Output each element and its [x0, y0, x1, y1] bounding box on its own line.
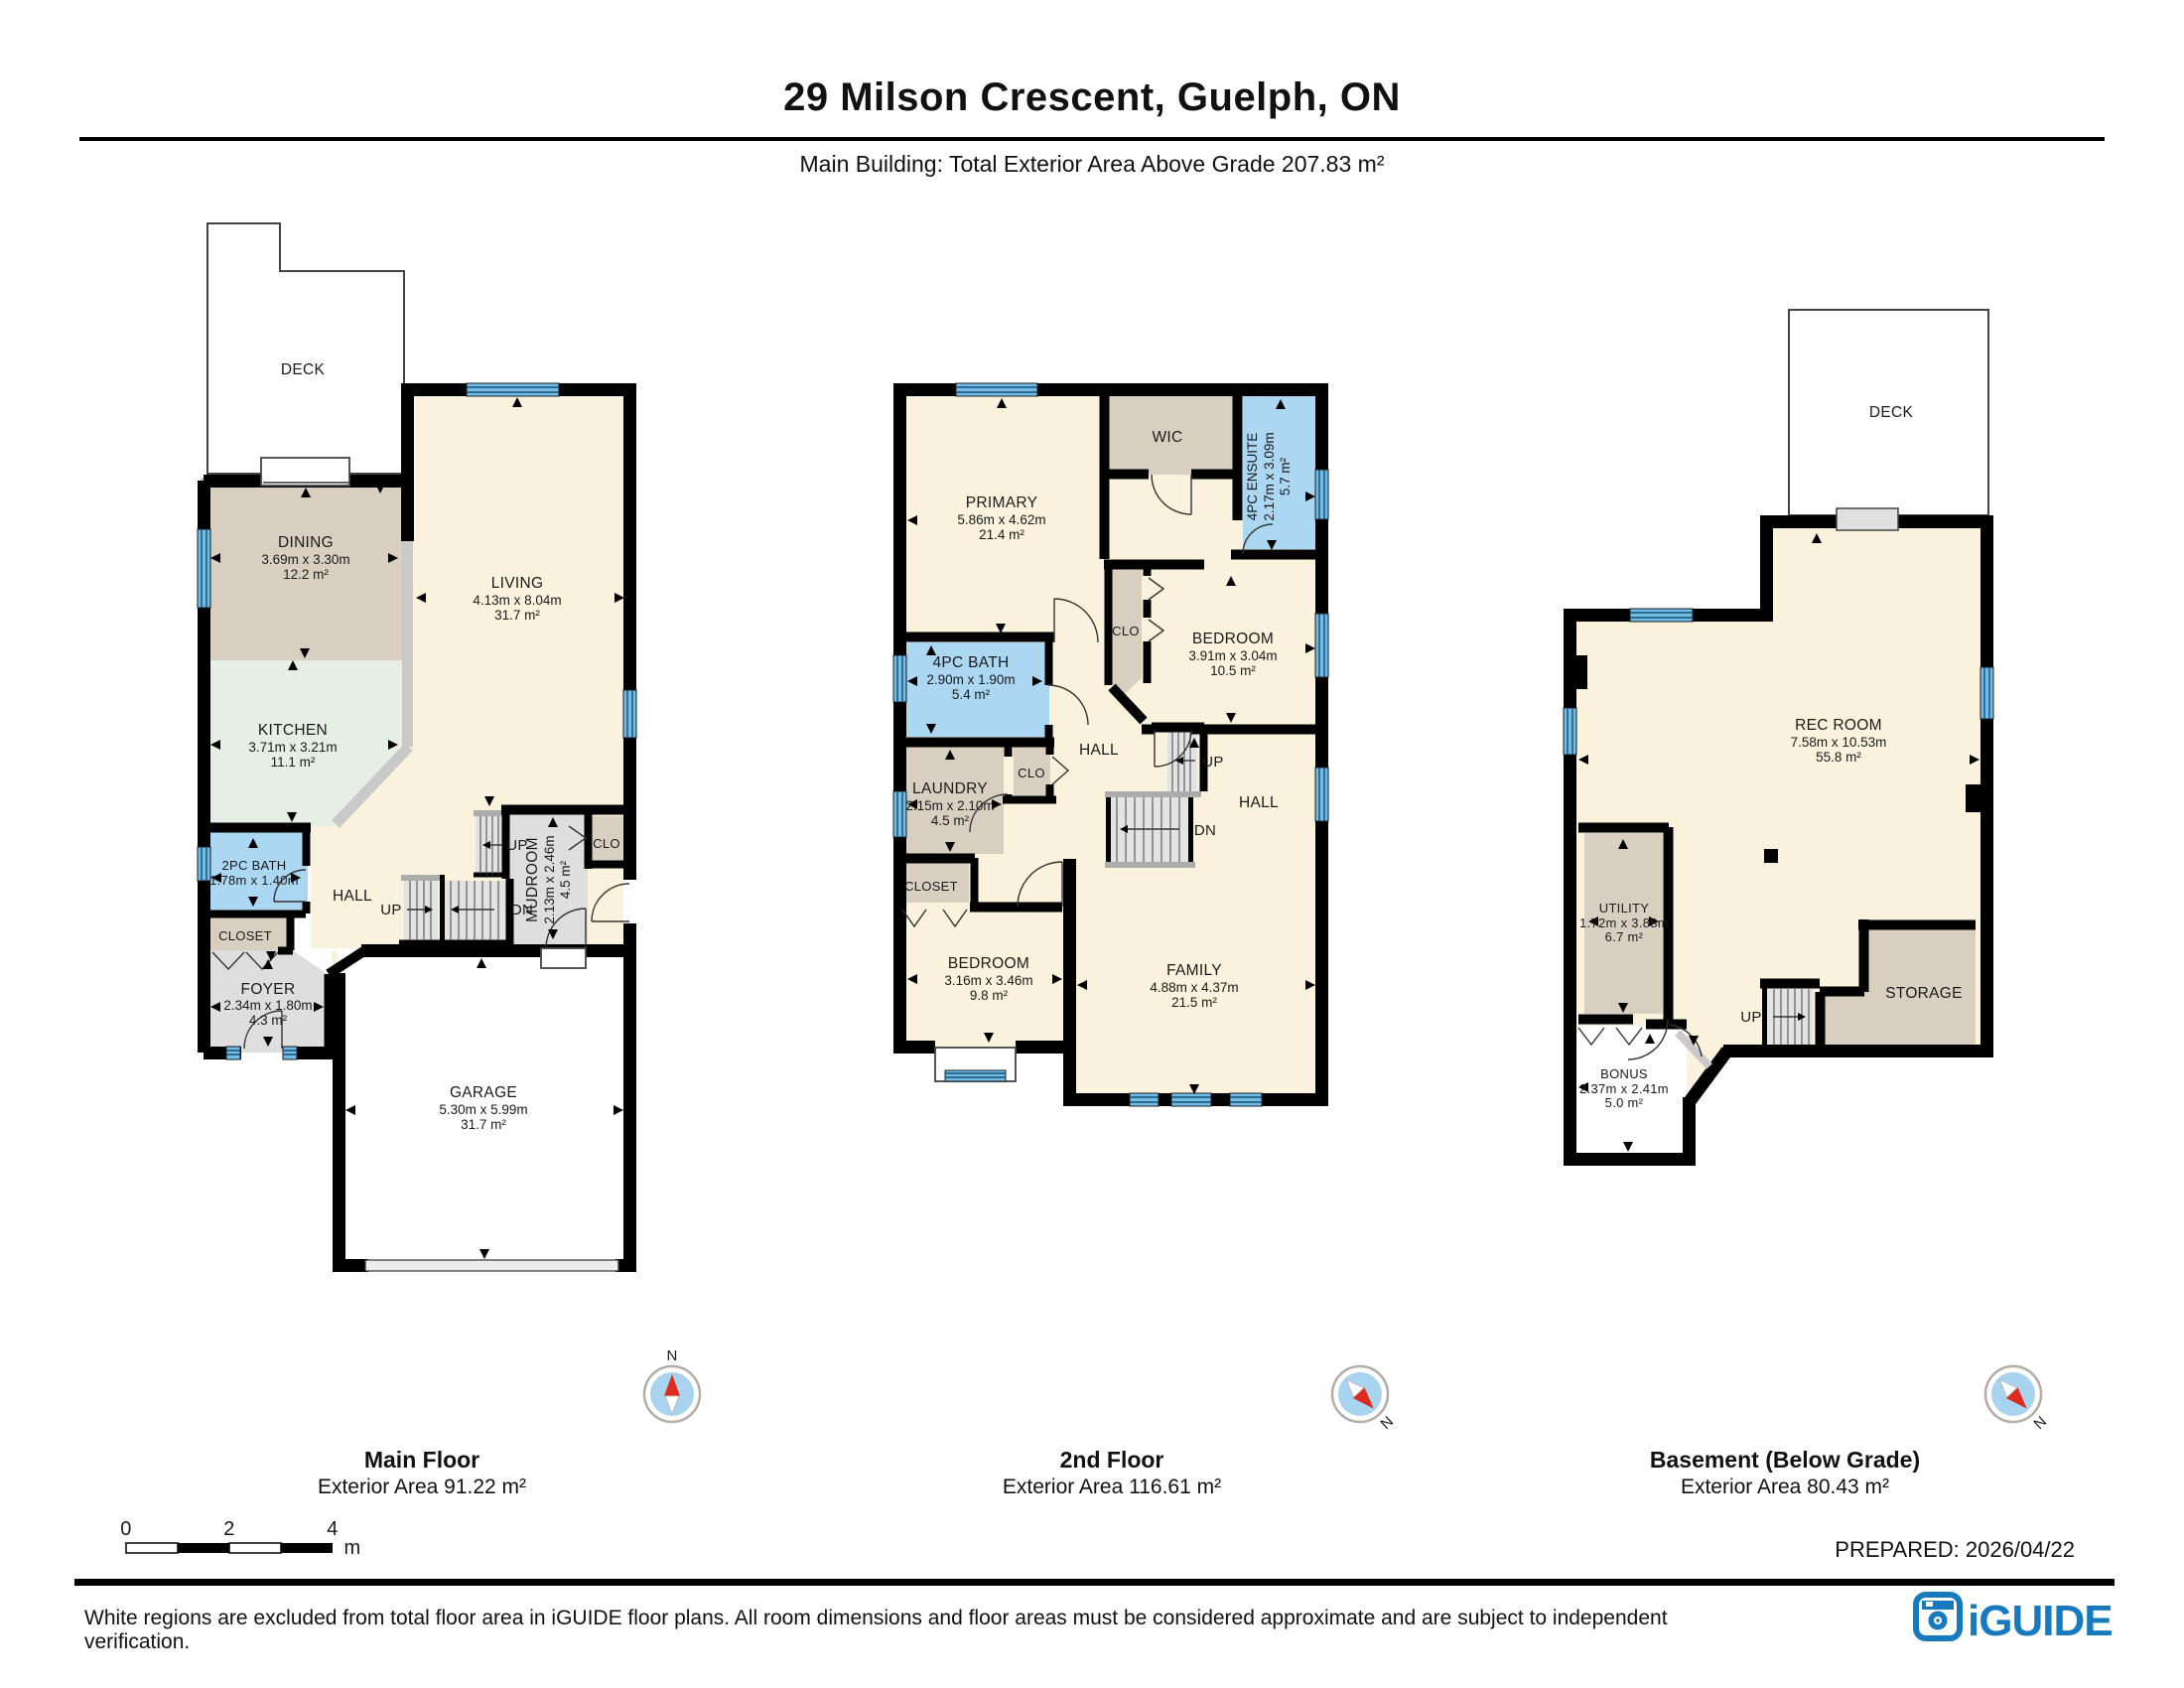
svg-text:3.16m x 3.46m: 3.16m x 3.46m — [944, 973, 1032, 988]
svg-text:7.58m x 10.53m: 7.58m x 10.53m — [1791, 735, 1887, 750]
scale-bar: 0 2 4 m — [109, 1517, 407, 1567]
label-clo: CLO — [593, 836, 620, 851]
svg-text:2.15m x 2.10m: 2.15m x 2.10m — [905, 798, 994, 813]
compass-2nd-floor: N — [1315, 1342, 1405, 1442]
label-bedroom3: BEDROOM — [948, 955, 1029, 972]
svg-text:12.2 m²: 12.2 m² — [283, 567, 329, 582]
label-hall2: HALL — [1239, 794, 1279, 811]
floorplan-2nd-floor: PRIMARY 5.86m x 4.62m 21.4 m² WIC 4PC EN… — [869, 367, 1350, 1132]
label-rec-room: REC ROOM — [1795, 717, 1882, 734]
iguide-logo: iGUIDE — [1912, 1589, 2120, 1644]
label-closet: CLOSET — [218, 928, 272, 943]
svg-text:2.37m x 2.41m: 2.37m x 2.41m — [1579, 1081, 1669, 1096]
svg-text:2: 2 — [223, 1518, 234, 1540]
svg-text:5.0 m²: 5.0 m² — [1605, 1095, 1644, 1110]
svg-text:2.13m x 2.46m: 2.13m x 2.46m — [542, 835, 557, 923]
deck-outline — [207, 223, 404, 474]
label-dn: DN — [511, 902, 533, 918]
svg-text:5.86m x 4.62m: 5.86m x 4.62m — [957, 512, 1045, 527]
label-utility: UTILITY — [1599, 901, 1650, 915]
svg-text:6.7 m²: 6.7 m² — [1605, 929, 1644, 944]
label-foyer: FOYER — [241, 981, 296, 998]
floorplan-page: 29 Milson Crescent, Guelph, ON Main Buil… — [0, 0, 2184, 1688]
compass-basement: N — [1969, 1342, 2058, 1442]
label-deck: DECK — [281, 361, 326, 378]
svg-text:4.5 m²: 4.5 m² — [931, 813, 970, 828]
label-closet: CLOSET — [904, 879, 958, 894]
label-bonus: BONUS — [1600, 1066, 1648, 1081]
label-up: UP — [1740, 1009, 1761, 1026]
caption-main-floor: Main Floor Exterior Area 91.22 m² — [213, 1446, 630, 1500]
label-dn: DN — [1194, 822, 1216, 839]
label-wic: WIC — [1152, 429, 1182, 446]
svg-text:4.13m x 8.04m: 4.13m x 8.04m — [473, 593, 561, 608]
label-kitchen: KITCHEN — [258, 722, 328, 739]
svg-text:31.7 m²: 31.7 m² — [461, 1117, 506, 1132]
title-divider — [79, 137, 2105, 141]
label-2pc-bath: 2PC BATH — [221, 858, 286, 873]
iguide-logo-text: iGUIDE — [1968, 1597, 2113, 1644]
footer-disclaimer: White regions are excluded from total fl… — [84, 1607, 1772, 1654]
svg-text:3.69m x 3.30m: 3.69m x 3.30m — [261, 552, 349, 567]
svg-text:4.5 m²: 4.5 m² — [558, 860, 573, 899]
page-subtitle: Main Building: Total Exterior Area Above… — [0, 151, 2184, 178]
svg-text:11.1 m²: 11.1 m² — [271, 755, 316, 770]
page-title: 29 Milson Crescent, Guelph, ON — [0, 75, 2184, 120]
svg-text:2.34m x 1.80m: 2.34m x 1.80m — [223, 998, 312, 1013]
svg-text:5.7 m²: 5.7 m² — [1278, 457, 1293, 495]
label-hall: HALL — [333, 888, 372, 905]
floorplan-main-floor: DECK DINING 3.69m x 3.30m 12.2 m² LIVING… — [179, 199, 655, 1291]
svg-text:2.90m x 1.90m: 2.90m x 1.90m — [926, 672, 1015, 687]
label-up: UP — [1202, 754, 1223, 771]
window-and-door-openings — [1837, 508, 1898, 530]
scale-unit: m — [344, 1537, 361, 1559]
svg-text:4PC ENSUITE: 4PC ENSUITE — [1245, 433, 1260, 521]
svg-text:9.8 m²: 9.8 m² — [970, 988, 1009, 1003]
svg-text:5.4 m²: 5.4 m² — [952, 687, 991, 702]
svg-text:4: 4 — [327, 1518, 338, 1540]
caption-2nd-floor: 2nd Floor Exterior Area 116.61 m² — [903, 1446, 1320, 1500]
footer-divider — [74, 1579, 2115, 1586]
bay-window — [935, 1048, 1016, 1081]
compass-main-floor: N — [627, 1342, 717, 1442]
caption-basement: Basement (Below Grade) Exterior Area 80.… — [1576, 1446, 1993, 1500]
svg-text:0: 0 — [120, 1518, 131, 1540]
label-clo2: CLO — [1018, 766, 1045, 780]
svg-text:21.4 m²: 21.4 m² — [979, 527, 1024, 542]
svg-text:1.78m x 1.40m: 1.78m x 1.40m — [209, 873, 299, 888]
label-hall1: HALL — [1079, 742, 1119, 759]
svg-text:5.30m x 5.99m: 5.30m x 5.99m — [439, 1102, 527, 1117]
svg-text:4.3 m²: 4.3 m² — [249, 1013, 288, 1028]
label-bedroom2: BEDROOM — [1192, 631, 1274, 647]
svg-text:2.17m x 3.09m: 2.17m x 3.09m — [1262, 432, 1277, 520]
label-living: LIVING — [491, 575, 544, 592]
label-up: UP — [380, 902, 401, 918]
svg-text:1.72m x 3.88m: 1.72m x 3.88m — [1579, 915, 1669, 930]
iguide-logo-icon — [1916, 1595, 1960, 1638]
prepared-date: PREPARED: 2026/04/22 — [1569, 1537, 2075, 1563]
floorplan-basement: DECK REC ROOM 7.58m x 10.53m 55.8 m² UTI… — [1544, 293, 2030, 1182]
svg-text:21.5 m²: 21.5 m² — [1171, 995, 1217, 1010]
label-clo1: CLO — [1112, 624, 1140, 638]
label-primary: PRIMARY — [966, 494, 1037, 511]
svg-text:31.7 m²: 31.7 m² — [494, 608, 540, 623]
label-storage: STORAGE — [1885, 985, 1963, 1002]
svg-text:3.71m x 3.21m: 3.71m x 3.21m — [248, 740, 337, 755]
label-4pc-bath: 4PC BATH — [932, 654, 1009, 671]
label-garage: GARAGE — [450, 1084, 517, 1101]
svg-text:3.91m x 3.04m: 3.91m x 3.04m — [1188, 648, 1277, 663]
label-deck: DECK — [1869, 404, 1914, 421]
svg-text:55.8 m²: 55.8 m² — [1816, 750, 1861, 765]
compass-n: N — [666, 1347, 677, 1364]
label-up: UP — [506, 837, 527, 854]
svg-text:4.88m x 4.37m: 4.88m x 4.37m — [1150, 980, 1238, 995]
svg-text:10.5 m²: 10.5 m² — [1210, 663, 1256, 678]
label-dining: DINING — [278, 534, 334, 551]
label-laundry: LAUNDRY — [912, 780, 988, 797]
label-family: FAMILY — [1166, 962, 1222, 979]
